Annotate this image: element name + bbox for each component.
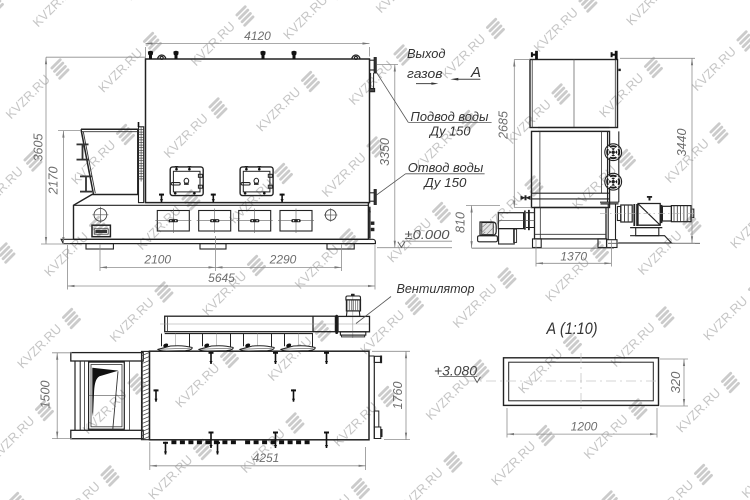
svg-text:4251: 4251	[253, 451, 280, 465]
svg-text:Выход: Выход	[407, 46, 446, 61]
svg-text:Вентилятор: Вентилятор	[397, 282, 475, 296]
svg-text:3350: 3350	[378, 138, 392, 166]
svg-text:А (1:10): А (1:10)	[546, 319, 598, 338]
svg-text:320: 320	[668, 371, 683, 393]
svg-text:Подвод воды: Подвод воды	[411, 110, 489, 124]
svg-text:2100: 2100	[143, 253, 171, 267]
svg-text:1200: 1200	[571, 419, 598, 433]
svg-text:+3.080: +3.080	[434, 363, 478, 378]
svg-text:4120: 4120	[244, 29, 271, 43]
svg-text:2170: 2170	[47, 167, 61, 196]
svg-text:Отвод воды: Отвод воды	[408, 161, 484, 175]
svg-text:Ду 150: Ду 150	[428, 125, 471, 139]
svg-text:5645: 5645	[208, 271, 235, 285]
svg-text:газов: газов	[407, 66, 443, 81]
svg-text:3440: 3440	[675, 129, 689, 157]
svg-text:Ду 150: Ду 150	[422, 176, 466, 190]
svg-text:810: 810	[454, 212, 468, 233]
svg-text:1370: 1370	[560, 250, 587, 264]
svg-text:3605: 3605	[32, 134, 46, 162]
svg-text:2685: 2685	[497, 111, 511, 140]
svg-text:А: А	[470, 64, 481, 81]
svg-text:1760: 1760	[391, 382, 405, 410]
svg-text:2290: 2290	[269, 253, 297, 267]
svg-text:1500: 1500	[39, 381, 53, 409]
svg-text:±0.000: ±0.000	[405, 227, 451, 242]
